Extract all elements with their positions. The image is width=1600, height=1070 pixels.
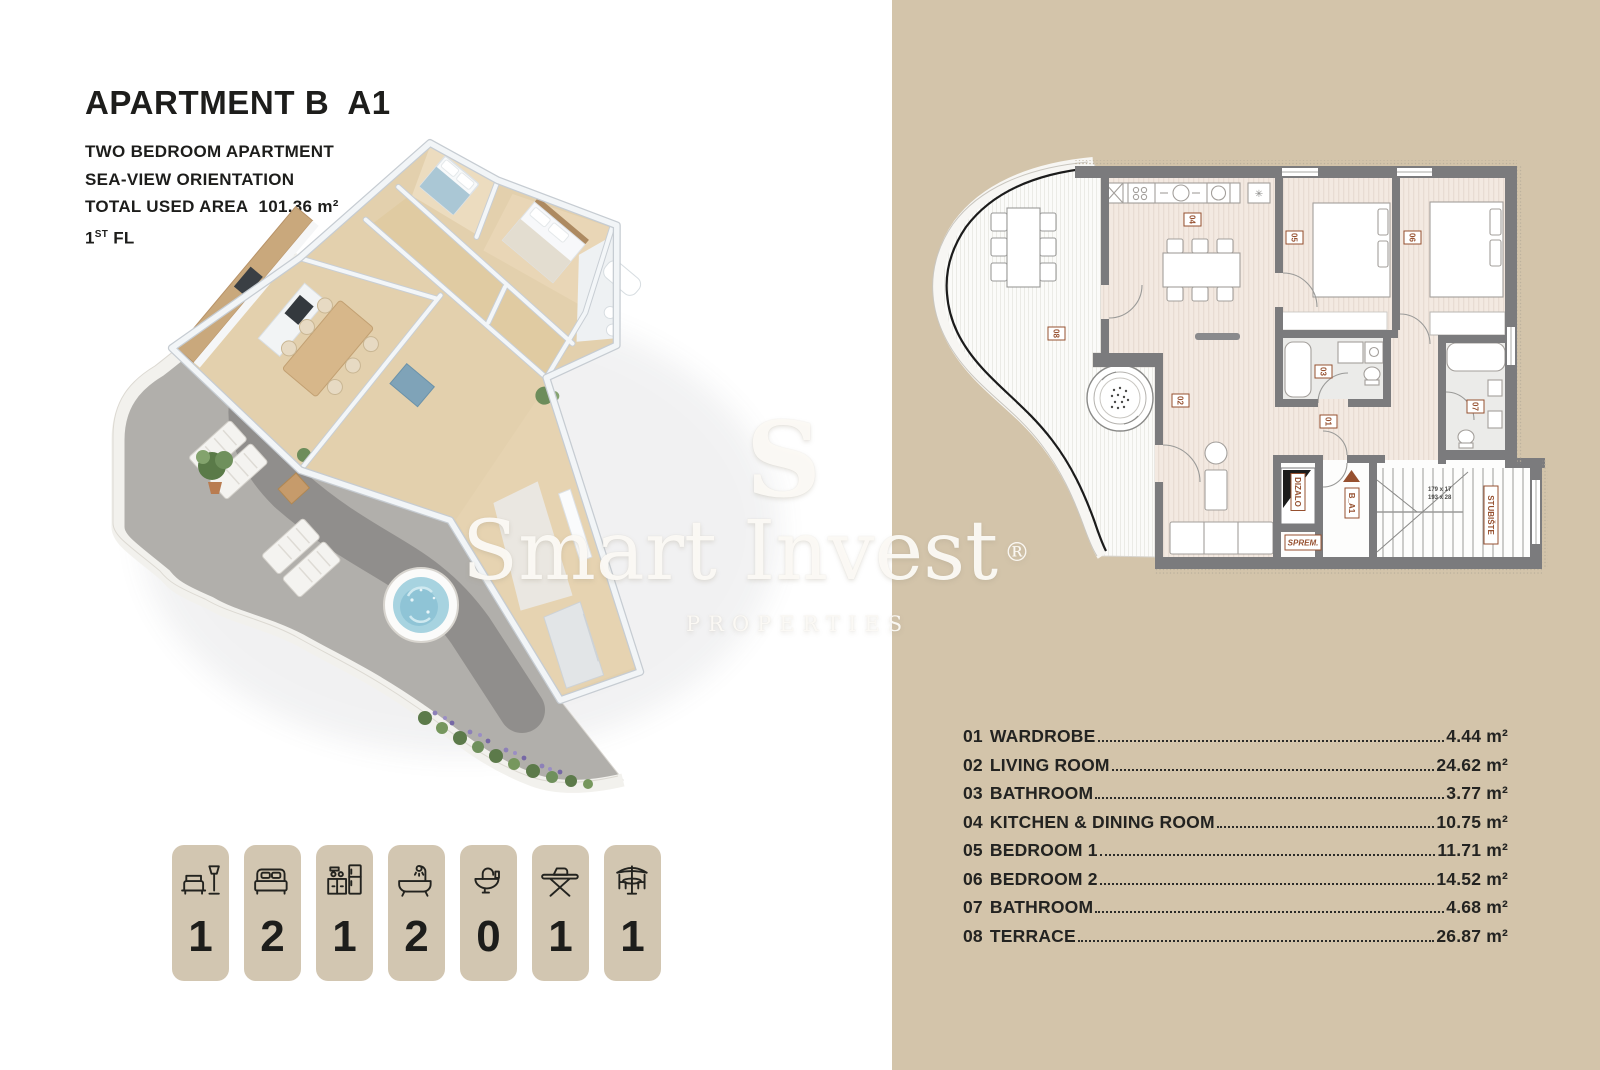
kitchen-icon — [324, 856, 366, 904]
badge-count: 1 — [548, 912, 572, 962]
hot-tub-2d — [1087, 365, 1153, 431]
room-row: 08TERRACE26.87 m² — [963, 926, 1508, 955]
badge-bedrooms: 2 — [244, 845, 301, 981]
badge-count: 2 — [404, 912, 428, 962]
room-area: 26.87 m² — [1436, 926, 1508, 947]
floorplan-3d-render — [90, 130, 810, 802]
floorplan-2d: 08 04 02 05 06 03 01 07 DIZALO B_A1 SPRE… — [928, 152, 1550, 580]
room-area: 4.68 m² — [1446, 897, 1508, 918]
room-row: 04KITCHEN & DINING ROOM10.75 m² — [963, 812, 1508, 841]
tv-sideboard-2d — [1195, 333, 1240, 340]
svg-text:02: 02 — [1176, 396, 1185, 405]
unit-code: A1 — [347, 84, 390, 121]
room-row: 05BEDROOM 111.71 m² — [963, 840, 1508, 869]
room-row: 02LIVING ROOM24.62 m² — [963, 755, 1508, 784]
watermark-registered-mark: ® — [1004, 538, 1030, 568]
room-area: 4.44 m² — [1446, 726, 1508, 747]
svg-text:DIZALO: DIZALO — [1293, 477, 1302, 507]
washbasin-icon — [468, 856, 510, 904]
stair-dimension-1: 179 x 17 — [1428, 487, 1452, 493]
patio-table-icon — [612, 856, 654, 904]
room-row: 06BEDROOM 214.52 m² — [963, 869, 1508, 898]
stair-dimension-2: 193 x 28 — [1428, 495, 1452, 501]
badge-kitchens: 1 — [316, 845, 373, 981]
svg-text:01: 01 — [1324, 417, 1333, 426]
badge-washbasins: 0 — [460, 845, 517, 981]
badge-count: 1 — [332, 912, 356, 962]
badge-count: 1 — [620, 912, 644, 962]
page-title: APARTMENT BA1 — [85, 84, 391, 122]
ironing-board-icon — [540, 856, 582, 904]
svg-text:03: 03 — [1319, 367, 1328, 376]
svg-text:SPREM.: SPREM. — [1288, 539, 1319, 548]
badge-bathtubs: 2 — [388, 845, 445, 981]
sofa-lamp-icon — [180, 856, 222, 904]
badge-laundry: 1 — [532, 845, 589, 981]
badge-count: 2 — [260, 912, 284, 962]
room-row: 01WARDROBE4.44 m² — [963, 726, 1508, 755]
feature-badges: 1 2 — [172, 845, 661, 981]
badge-terraces: 1 — [604, 845, 661, 981]
room-area-list: 01WARDROBE4.44 m² 02LIVING ROOM24.62 m² … — [963, 726, 1508, 954]
badge-count: 0 — [476, 912, 500, 962]
hot-tub — [384, 568, 458, 642]
vent-symbol: ✳ — [1255, 189, 1263, 200]
room-area: 24.62 m² — [1436, 755, 1508, 776]
brochure-page: APARTMENT BA1 TWO BEDROOM APARTMENT SEA-… — [0, 0, 1600, 1070]
room-row: 03BATHROOM3.77 m² — [963, 783, 1508, 812]
room-row: 07BATHROOM4.68 m² — [963, 897, 1508, 926]
svg-text:06: 06 — [1408, 233, 1417, 242]
room-area: 10.75 m² — [1436, 812, 1508, 833]
badge-living-rooms: 1 — [172, 845, 229, 981]
svg-text:05: 05 — [1290, 233, 1299, 242]
room-area: 11.71 m² — [1437, 840, 1508, 861]
svg-text:B_A1: B_A1 — [1347, 493, 1356, 514]
svg-text:08: 08 — [1052, 329, 1061, 338]
svg-text:07: 07 — [1471, 402, 1480, 411]
bathtub-icon — [396, 856, 438, 904]
svg-text:04: 04 — [1188, 215, 1197, 224]
room-area: 3.77 m² — [1446, 783, 1508, 804]
badge-count: 1 — [188, 912, 212, 962]
room-area: 14.52 m² — [1436, 869, 1508, 890]
header: APARTMENT BA1 — [85, 84, 391, 122]
svg-text:STUBIŠTE: STUBIŠTE — [1486, 495, 1495, 535]
terrace-table-2d — [991, 208, 1056, 287]
double-bed-icon — [252, 856, 294, 904]
